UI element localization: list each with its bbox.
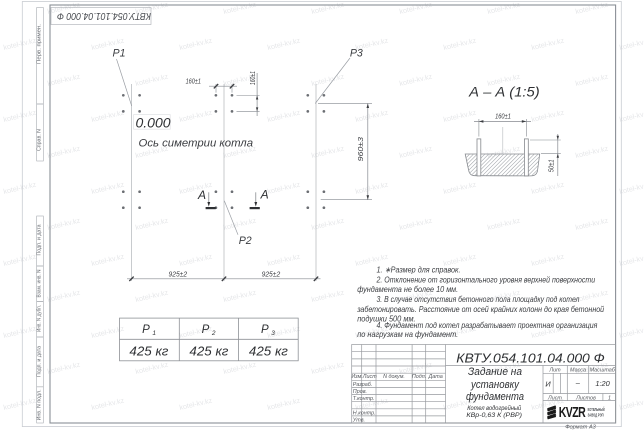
svg-text:1: 1 (152, 330, 156, 337)
svg-text:kotel-kv.kz: kotel-kv.kz (90, 324, 125, 340)
svg-text:kotel-kv.kz: kotel-kv.kz (222, 360, 257, 376)
svg-text:kotel-kv.kz: kotel-kv.kz (574, 72, 609, 88)
svg-text:А: А (260, 188, 269, 202)
svg-text:kotel-kv.kz: kotel-kv.kz (178, 108, 213, 124)
svg-text:Инв. N подл.: Инв. N подл. (37, 389, 43, 420)
svg-text:kotel-kv.kz: kotel-kv.kz (46, 288, 81, 304)
svg-text:Подп. и дата: Подп. и дата (37, 346, 43, 377)
svg-text:kotel-kv.kz: kotel-kv.kz (574, 288, 609, 304)
svg-text:4. Фундамент под котел разраба: 4. Фундамент под котел разрабатывает про… (377, 321, 598, 330)
svg-text:Лит: Лит (548, 368, 561, 374)
svg-text:Р: Р (261, 324, 269, 336)
svg-text:kotel-kv.kz: kotel-kv.kz (178, 180, 213, 196)
svg-text:kotel-kv.kz: kotel-kv.kz (530, 108, 565, 124)
svg-text:kotel-kv.kz: kotel-kv.kz (46, 360, 81, 376)
svg-text:Н.контр.: Н.контр. (353, 411, 376, 417)
svg-text:kotel-kv.kz: kotel-kv.kz (266, 180, 301, 196)
svg-text:0.000: 0.000 (136, 115, 171, 131)
svg-text:kotel-kv.kz: kotel-kv.kz (398, 144, 433, 160)
svg-text:фундамента: фундамента (466, 391, 524, 403)
svg-text:425 кг: 425 кг (249, 345, 288, 359)
svg-text:Утв.: Утв. (352, 417, 365, 423)
svg-text:И: И (545, 379, 551, 388)
svg-text:kotel-kv.kz: kotel-kv.kz (46, 72, 81, 88)
svg-text:kotel-kv.kz: kotel-kv.kz (442, 180, 477, 196)
svg-text:Подп. и дата: Подп. и дата (37, 224, 43, 255)
svg-text:kotel-kv.kz: kotel-kv.kz (574, 216, 609, 232)
svg-text:kotel-kv.kz: kotel-kv.kz (2, 36, 37, 52)
svg-text:kotel-kv.kz: kotel-kv.kz (222, 216, 257, 232)
svg-text:установку: установку (470, 379, 520, 391)
svg-text:Листов: Листов (575, 396, 596, 402)
svg-text:3: 3 (271, 330, 275, 337)
svg-text:kotel-kv.kz: kotel-kv.kz (222, 0, 257, 16)
svg-text:kotel-kv.kz: kotel-kv.kz (398, 0, 433, 16)
svg-text:160±1: 160±1 (186, 79, 201, 86)
svg-text:kotel-kv.kz: kotel-kv.kz (618, 324, 644, 340)
svg-text:Взам. инв. N: Взам. инв. N (37, 269, 43, 297)
svg-text:kotel-kv.kz: kotel-kv.kz (310, 288, 345, 304)
svg-text:kotel-kv.kz: kotel-kv.kz (2, 180, 37, 196)
svg-text:–: – (575, 378, 581, 387)
svg-text:kotel-kv.kz: kotel-kv.kz (266, 108, 301, 124)
svg-text:kotel-kv.kz: kotel-kv.kz (90, 180, 125, 196)
svg-text:kotel-kv.kz: kotel-kv.kz (90, 108, 125, 124)
svg-text:kotel-kv.kz: kotel-kv.kz (178, 396, 213, 412)
svg-text:kotel-kv.kz: kotel-kv.kz (618, 396, 644, 412)
svg-text:Р1: Р1 (113, 48, 126, 60)
svg-text:kotel-kv.kz: kotel-kv.kz (222, 288, 257, 304)
svg-text:kotel-kv.kz: kotel-kv.kz (178, 36, 213, 52)
svg-text:kotel-kv.kz: kotel-kv.kz (178, 252, 213, 268)
svg-text:Р3: Р3 (350, 47, 363, 59)
svg-text:kotel-kv.kz: kotel-kv.kz (2, 108, 37, 124)
svg-text:160±1: 160±1 (250, 71, 257, 85)
svg-text:925±2: 925±2 (169, 272, 188, 279)
svg-text:kotel-kv.kz: kotel-kv.kz (354, 108, 389, 124)
svg-text:А: А (197, 188, 206, 202)
svg-text:2: 2 (211, 330, 216, 337)
svg-text:kotel-kv.kz: kotel-kv.kz (2, 324, 37, 340)
svg-text:Т.контр.: Т.контр. (353, 396, 375, 402)
svg-text:Р2: Р2 (239, 235, 252, 247)
svg-text:kotel-kv.kz: kotel-kv.kz (310, 360, 345, 376)
svg-text:160±1: 160±1 (495, 114, 511, 121)
svg-text:1: 1 (608, 396, 611, 402)
svg-text:1. ∗Размер для справок.: 1. ∗Размер для справок. (377, 266, 461, 275)
svg-text:kotel-kv.kz: kotel-kv.kz (46, 144, 81, 160)
svg-text:kotel-kv.kz: kotel-kv.kz (442, 108, 477, 124)
svg-text:kotel-kv.kz: kotel-kv.kz (530, 252, 565, 268)
svg-text:kotel-kv.kz: kotel-kv.kz (618, 108, 644, 124)
svg-text:фундамента не более 10 мм.: фундамента не более 10 мм. (357, 285, 458, 294)
svg-text:по нагрузкам на фундамент.: по нагрузкам на фундамент. (357, 330, 458, 339)
svg-text:kotel-kv.kz: kotel-kv.kz (134, 72, 169, 88)
svg-text:Ось симетрии котла: Ось симетрии котла (139, 137, 254, 149)
svg-text:Задание на: Задание на (468, 366, 522, 378)
svg-text:kotel-kv.kz: kotel-kv.kz (530, 180, 565, 196)
svg-text:КВТУ.054.101.04.000 Ф: КВТУ.054.101.04.000 Ф (57, 10, 151, 21)
svg-text:kotel-kv.kz: kotel-kv.kz (486, 0, 521, 16)
svg-text:2. Отклонение от горизонтально: 2. Отклонение от горизонтального уровня … (376, 275, 596, 284)
svg-text:kotel-kv.kz: kotel-kv.kz (442, 36, 477, 52)
svg-text:kotel-kv.kz: kotel-kv.kz (618, 252, 644, 268)
svg-text:kotel-kv.kz: kotel-kv.kz (2, 396, 37, 412)
svg-text:Р: Р (202, 324, 210, 336)
svg-text:kotel-kv.kz: kotel-kv.kz (486, 216, 521, 232)
svg-text:Масса: Масса (570, 368, 586, 374)
svg-text:425 кг: 425 кг (129, 345, 168, 359)
svg-text:ЗАВОД РЭП: ЗАВОД РЭП (588, 412, 604, 417)
svg-text:kotel-kv.kz: kotel-kv.kz (354, 180, 389, 196)
svg-text:kotel-kv.kz: kotel-kv.kz (574, 0, 609, 16)
svg-text:kotel-kv.kz: kotel-kv.kz (310, 0, 345, 16)
svg-text:Дата: Дата (427, 374, 442, 380)
svg-text:kotel-kv.kz: kotel-kv.kz (310, 72, 345, 88)
svg-text:забетонировать. Расстояние от: забетонировать. Расстояние от осей крайн… (356, 305, 604, 314)
svg-text:КВТУ.054.101.04.000 Ф: КВТУ.054.101.04.000 Ф (456, 350, 605, 365)
svg-text:kotel-kv.kz: kotel-kv.kz (618, 36, 644, 52)
svg-text:kotel-kv.kz: kotel-kv.kz (46, 216, 81, 232)
svg-text:425 кг: 425 кг (189, 345, 228, 359)
svg-text:kotel-kv.kz: kotel-kv.kz (266, 36, 301, 52)
svg-text:kotel-kv.kz: kotel-kv.kz (398, 72, 433, 88)
svg-text:kotel-kv.kz: kotel-kv.kz (486, 144, 521, 160)
svg-text:КВр-0,63 К (РВР): КВр-0,63 К (РВР) (466, 412, 522, 419)
svg-text:А – А (1:5): А – А (1:5) (468, 84, 540, 100)
svg-text:kotel-kv.kz: kotel-kv.kz (618, 180, 644, 196)
svg-text:kotel-kv.kz: kotel-kv.kz (530, 36, 565, 52)
svg-text:Лист: Лист (547, 396, 562, 402)
svg-text:kotel-kv.kz: kotel-kv.kz (574, 144, 609, 160)
svg-text:kotel-kv.kz: kotel-kv.kz (2, 252, 37, 268)
svg-text:960±3: 960±3 (358, 137, 365, 162)
svg-text:kotel-kv.kz: kotel-kv.kz (90, 396, 125, 412)
svg-text:kotel-kv.kz: kotel-kv.kz (310, 144, 345, 160)
svg-text:kotel-kv.kz: kotel-kv.kz (134, 216, 169, 232)
svg-text:Справ. N: Справ. N (37, 129, 43, 151)
svg-text:Формат А3: Формат А3 (565, 424, 596, 430)
svg-text:50±1: 50±1 (548, 159, 555, 172)
svg-text:kotel-kv.kz: kotel-kv.kz (398, 216, 433, 232)
svg-text:kotel-kv.kz: kotel-kv.kz (90, 252, 125, 268)
svg-text:3. В случае отсутствия бетонно: 3. В случае отсутствия бетонного пола пл… (377, 295, 580, 304)
svg-text:kotel-kv.kz: kotel-kv.kz (134, 360, 169, 376)
svg-text:kotel-kv.kz: kotel-kv.kz (266, 252, 301, 268)
svg-text:Масштаб: Масштаб (590, 368, 616, 374)
svg-text:Разраб.: Разраб. (353, 382, 373, 388)
svg-text:Р: Р (142, 324, 150, 336)
svg-text:KVZR: KVZR (559, 404, 586, 421)
svg-text:1:20: 1:20 (595, 379, 610, 388)
svg-text:КОТЕЛЬНЫЙ: КОТЕЛЬНЫЙ (588, 405, 605, 412)
svg-text:Пров.: Пров. (353, 389, 367, 395)
svg-text:925±2: 925±2 (262, 272, 281, 279)
svg-text:kotel-kv.kz: kotel-kv.kz (310, 216, 345, 232)
svg-text:Изм.Лист: Изм.Лист (351, 374, 377, 380)
svg-text:kotel-kv.kz: kotel-kv.kz (266, 396, 301, 412)
svg-text:Инв. N дубл.: Инв. N дубл. (37, 305, 43, 332)
svg-text:kotel-kv.kz: kotel-kv.kz (134, 288, 169, 304)
svg-text:Подп.: Подп. (412, 374, 426, 380)
svg-text:Перв. примен.: Перв. примен. (37, 24, 43, 64)
svg-text:N докум.: N докум. (383, 374, 405, 380)
